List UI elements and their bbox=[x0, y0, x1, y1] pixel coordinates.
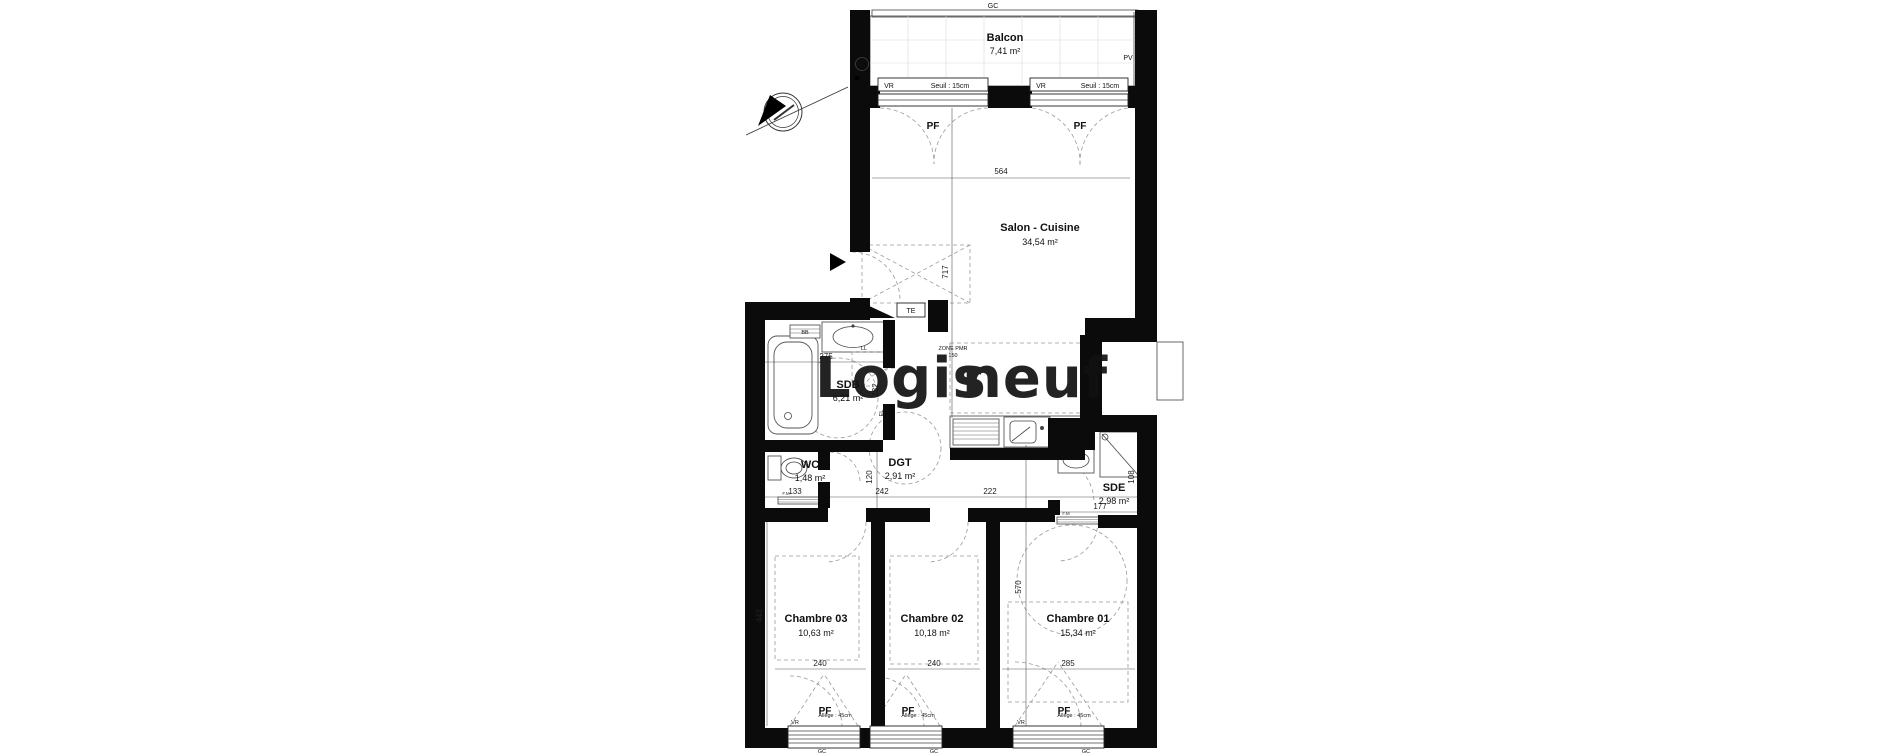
dim-ch2-width: 240 bbox=[927, 659, 941, 668]
dim-ch1-width: 285 bbox=[1061, 659, 1075, 668]
room-name-dgt: DGT bbox=[888, 457, 912, 469]
allege-label-ch2: Allège : 45cm bbox=[901, 713, 935, 719]
seuil-label-right: Seuil : 15cm bbox=[1081, 83, 1120, 90]
dim-hall-2: 242 bbox=[875, 487, 889, 496]
dim-ch1-height: 570 bbox=[1014, 580, 1023, 594]
room-area-chambre1: 15,34 m² bbox=[1060, 628, 1096, 638]
pf-label-top-left: PF bbox=[927, 121, 940, 132]
dim-salon-width: 564 bbox=[994, 167, 1008, 176]
room-area-wc: 1,48 m² bbox=[795, 473, 826, 483]
north-arrow-icon bbox=[746, 87, 848, 135]
room-name-balcon: Balcon bbox=[987, 32, 1024, 44]
vr-label-top-right: VR bbox=[1036, 83, 1046, 90]
allege-label-ch1: Allège : 45cm bbox=[1057, 713, 1091, 719]
dim-entry-depth: 717 bbox=[941, 265, 950, 279]
eb-label: EB bbox=[858, 63, 866, 69]
bathtub bbox=[768, 336, 818, 434]
vr-label-ch2: VR bbox=[873, 720, 881, 726]
bb-label-sde: BB bbox=[1114, 518, 1122, 524]
dim-dgt-height: 120 bbox=[865, 470, 874, 484]
entrance-arrow-icon bbox=[830, 253, 846, 271]
vr-label-ch3: VR bbox=[791, 720, 799, 726]
room-area-balcon: 7,41 m² bbox=[990, 46, 1021, 56]
floor-plan: GC Balcon 7,41 m² PV EB VR Seuil : 15cm … bbox=[0, 0, 1900, 754]
room-name-salon: Salon - Cuisine bbox=[1000, 222, 1079, 234]
dim-ch3-height: 443 bbox=[755, 609, 764, 623]
te-label: TE bbox=[907, 308, 916, 315]
room-name-sde: SDE bbox=[1103, 482, 1126, 494]
floor-plan-canvas: GC Balcon 7,41 m² PV EB VR Seuil : 15cm … bbox=[0, 0, 1900, 754]
room-name-wc: WC bbox=[801, 459, 819, 471]
room-name-chambre3: Chambre 03 bbox=[785, 613, 848, 625]
gc-label-bottom-3: GC bbox=[1082, 749, 1090, 754]
gc-label-top: GC bbox=[988, 3, 999, 10]
room-name-chambre1: Chambre 01 bbox=[1047, 613, 1110, 625]
gc-label-bottom-2: GC bbox=[930, 749, 938, 754]
window-bottom-ch3 bbox=[788, 726, 860, 748]
fm-label-hall: F.M bbox=[782, 491, 790, 496]
room-area-chambre3: 10,63 m² bbox=[798, 628, 834, 638]
room-area-salon: 34,54 m² bbox=[1022, 237, 1058, 247]
dim-hall-3: 222 bbox=[983, 487, 997, 496]
pv-label: PV bbox=[1123, 55, 1133, 62]
room-area-dgt: 2,91 m² bbox=[885, 471, 916, 481]
dim-hall-1: 133 bbox=[788, 487, 802, 496]
dim-sde-width: 177 bbox=[1093, 502, 1107, 511]
gc-label-bottom-1: GC bbox=[818, 749, 826, 754]
room-name-chambre2: Chambre 02 bbox=[901, 613, 964, 625]
pf-label-top-right: PF bbox=[1074, 121, 1087, 132]
window-bottom-ch2 bbox=[870, 726, 942, 748]
room-area-chambre2: 10,18 m² bbox=[914, 628, 950, 638]
dim-ch3-width: 240 bbox=[813, 659, 827, 668]
radiator-sde bbox=[1057, 517, 1099, 524]
window-bottom-ch1 bbox=[1013, 726, 1104, 748]
bb-label-sdb: BB bbox=[801, 330, 809, 336]
vr-label-ch1: VR bbox=[1017, 720, 1025, 726]
vr-label-top-left: VR bbox=[884, 83, 894, 90]
watermark: Logis neuf bbox=[815, 346, 1108, 411]
watermark-part1: Logis bbox=[815, 346, 987, 411]
shower bbox=[1100, 432, 1140, 477]
watermark-part2: neuf bbox=[962, 346, 1108, 411]
dim-sde-height: 108 bbox=[1127, 470, 1136, 484]
exterior-ledge bbox=[1157, 342, 1183, 400]
allege-label-ch3: Allège : 45cm bbox=[818, 713, 852, 719]
fm-label-sde: F.M bbox=[1062, 511, 1070, 516]
radiator-hall bbox=[778, 497, 822, 504]
seuil-label-left: Seuil : 15cm bbox=[931, 83, 970, 90]
